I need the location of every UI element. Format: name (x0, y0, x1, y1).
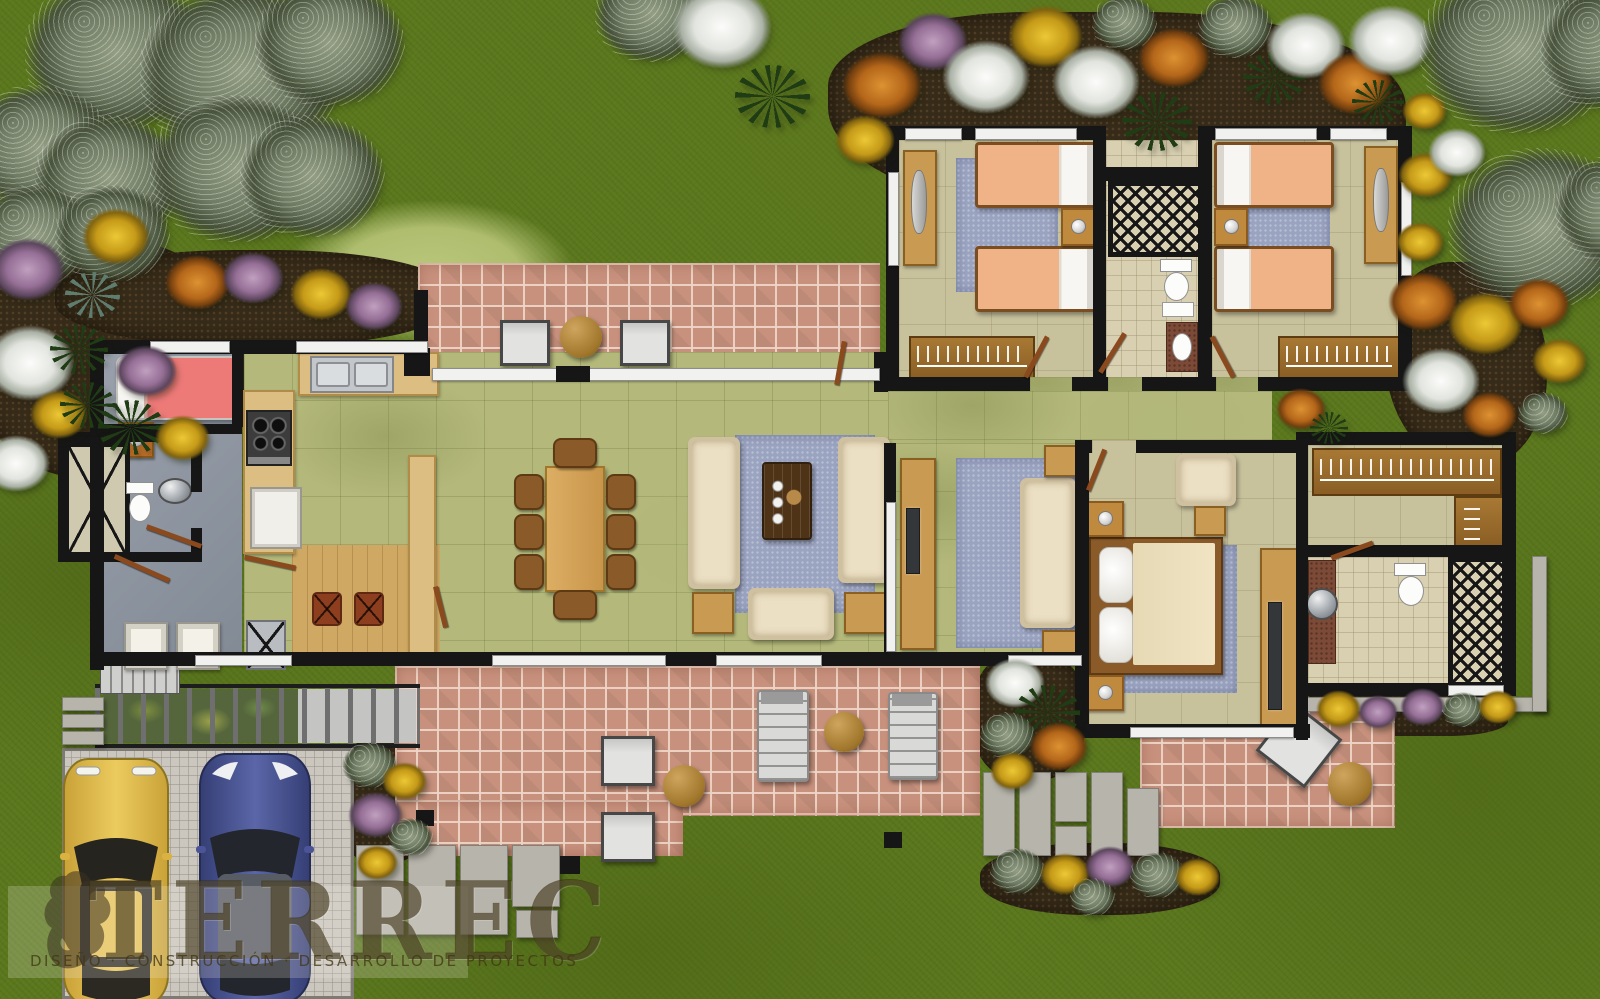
closet-a (909, 336, 1035, 380)
stepping-stone (1055, 826, 1087, 856)
fridge (250, 487, 302, 549)
palm-plant (735, 65, 810, 128)
master-armchair (1176, 454, 1236, 506)
step-block (62, 731, 104, 745)
step-block (62, 697, 104, 711)
dining-chair (514, 514, 544, 550)
terrace-chair (601, 736, 655, 786)
door-gap (1092, 440, 1136, 453)
sage-plant (1070, 878, 1115, 916)
living-sofa-right (838, 437, 890, 583)
toilet-bowl (129, 494, 151, 522)
bar-stool (354, 592, 384, 626)
kitchen-peninsula (408, 455, 436, 659)
master-bed (1089, 537, 1223, 675)
sage-plant (255, 0, 405, 106)
sliding-door (716, 655, 822, 666)
pillow (1099, 607, 1133, 663)
step-block (62, 714, 104, 728)
terrace-round-table (663, 765, 705, 807)
desk-object (911, 170, 927, 234)
family-door (886, 502, 896, 652)
yellow-plant (82, 208, 150, 265)
palm-plant (50, 325, 108, 374)
mullion (556, 366, 590, 382)
window (195, 655, 292, 666)
window (888, 172, 899, 266)
desk (903, 150, 937, 266)
nightstand (1086, 675, 1124, 711)
sage-plant (240, 115, 385, 237)
yellow-plant (155, 415, 210, 461)
purple-plant (1400, 688, 1445, 726)
wall-segment (1093, 167, 1211, 181)
dining-chair (514, 554, 544, 590)
twin-bed (975, 246, 1097, 312)
closet-hangers (1286, 346, 1392, 362)
closet-rail (1320, 479, 1494, 481)
sage-plant (990, 848, 1045, 894)
wall-segment (886, 377, 1412, 391)
purple-plant (115, 345, 177, 397)
door-gap (1030, 377, 1072, 391)
dining-chair (553, 590, 597, 620)
side-table (1194, 506, 1226, 536)
purple-plant (1358, 695, 1398, 729)
window (975, 128, 1077, 140)
pillow (1099, 547, 1133, 603)
sage-plant (388, 818, 433, 856)
lamp (1098, 685, 1113, 700)
window (1330, 128, 1387, 140)
lamp (1224, 219, 1239, 234)
palm-plant (1352, 80, 1404, 124)
twin-bed (1214, 142, 1334, 208)
purple-plant (345, 282, 403, 331)
toilet-bowl (1398, 576, 1424, 606)
toilet-tank (1160, 259, 1192, 272)
terrace-chair (601, 812, 655, 862)
nightstand (1214, 208, 1248, 246)
terrace-round-table (824, 712, 864, 752)
yellow-plant (990, 752, 1035, 790)
dining-chair (606, 514, 636, 550)
loveseat (748, 588, 834, 640)
door-gap (1108, 377, 1142, 391)
sage-plant (1198, 0, 1273, 58)
wall-segment (1198, 126, 1212, 391)
desk-object (1373, 168, 1389, 232)
white-plant (672, 0, 772, 69)
coffee-table (762, 462, 812, 540)
stove (246, 410, 292, 466)
closet-hangers (1320, 459, 1494, 475)
window (1215, 128, 1317, 140)
hallway-floor (888, 391, 1272, 443)
stepping-stone (1055, 772, 1087, 822)
twin-bed (1214, 246, 1334, 312)
site-plan: TERREC Diseño · Construcción · Desarroll… (0, 0, 1600, 999)
vanity-sink (1172, 333, 1192, 361)
living-sofa-left (688, 437, 740, 589)
wall-segment (232, 352, 243, 427)
wall-segment (58, 432, 69, 562)
yellow-plant (290, 268, 352, 320)
side-table (692, 592, 734, 634)
dining-chair (514, 474, 544, 510)
dining-chair (553, 438, 597, 468)
toilet-bowl (1164, 272, 1189, 301)
side-table (844, 592, 886, 634)
family-sofa (1020, 478, 1076, 628)
orange-plant (165, 255, 230, 310)
dining-chair (606, 554, 636, 590)
agave-plant (65, 272, 120, 318)
yellow-plant (835, 115, 895, 165)
closet-hangers (917, 346, 1027, 362)
tv-family (906, 508, 920, 574)
dining-table (545, 466, 605, 592)
palm-plant (1310, 412, 1348, 444)
closet-rail (1286, 365, 1392, 367)
sun-lounger (757, 690, 809, 782)
window (905, 128, 962, 140)
glass-wall (432, 368, 880, 381)
twin-bed (975, 142, 1097, 208)
walkin-closet-shelf (1312, 448, 1502, 496)
desk (1364, 146, 1398, 264)
yellow-plant (1396, 222, 1444, 262)
sun-lounger (888, 692, 938, 780)
bath-sink (158, 478, 192, 504)
pergola-post (884, 832, 902, 848)
logo-subtitle: Diseño · Construcción · Desarrollo de Pr… (30, 952, 578, 970)
window (296, 341, 428, 353)
shared-vanity (1166, 322, 1198, 372)
lamp (1098, 511, 1113, 526)
stepping-stone (1091, 772, 1123, 856)
sliding-door (492, 655, 666, 666)
door-gap (1216, 377, 1258, 391)
nightstand (1061, 208, 1095, 246)
purple-plant (222, 252, 284, 304)
dining-chair (606, 474, 636, 510)
master-blanket (1133, 543, 1215, 665)
closet-b (1278, 336, 1400, 380)
lounger-headrest (761, 692, 803, 704)
patio-chair (500, 320, 550, 366)
bar-stool (312, 592, 342, 626)
wall-segment (1093, 126, 1106, 391)
master-shower (1448, 557, 1510, 687)
orange-plant (1508, 278, 1570, 330)
closet-hangers (1464, 504, 1480, 540)
lounger-headrest (892, 694, 932, 706)
toilet-tank (126, 482, 154, 494)
pergola-slats (95, 688, 420, 744)
nightstand (1086, 501, 1124, 537)
orange-plant (1030, 722, 1088, 771)
patio-round-table (560, 316, 602, 358)
wall-segment (1502, 432, 1516, 558)
yellow-plant (1175, 858, 1220, 896)
yellow-plant (1478, 690, 1518, 724)
yellow-plant (1316, 690, 1361, 728)
path-east (1532, 556, 1547, 712)
wall-segment (1296, 545, 1516, 557)
palm-plant (1122, 92, 1192, 151)
sink-basin (316, 362, 350, 387)
kitchen-double-sink (310, 356, 394, 393)
sink-basin (354, 362, 388, 387)
patio-chair (620, 320, 670, 366)
yellow-plant (1532, 338, 1587, 384)
wall-segment (1502, 545, 1516, 696)
window (1130, 727, 1294, 738)
stepping-stone (1127, 788, 1159, 856)
walkin-closet-shelf-side (1454, 496, 1504, 548)
tv-master (1268, 602, 1282, 710)
master-sink (1306, 588, 1338, 620)
palm-plant (60, 382, 115, 428)
bath-shelf (1162, 302, 1194, 317)
sage-plant (1518, 392, 1568, 434)
shared-shower (1108, 181, 1204, 257)
lamp (1071, 219, 1086, 234)
toilet-tank (1394, 563, 1426, 576)
closet-rail (917, 365, 1027, 367)
patio-round-table (1328, 762, 1372, 806)
orange-plant (1462, 392, 1517, 438)
